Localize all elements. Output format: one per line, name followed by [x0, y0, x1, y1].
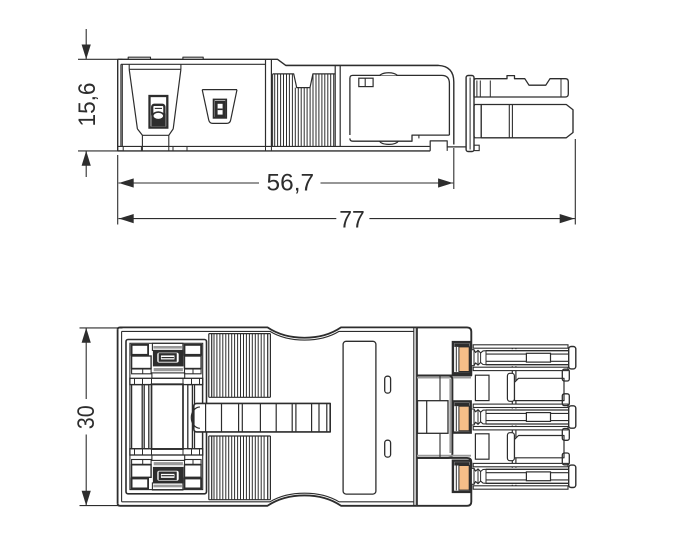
svg-text:30: 30: [73, 405, 100, 429]
svg-text:15,6: 15,6: [74, 83, 101, 127]
svg-text:56,7: 56,7: [267, 169, 315, 196]
svg-text:77: 77: [339, 206, 365, 233]
